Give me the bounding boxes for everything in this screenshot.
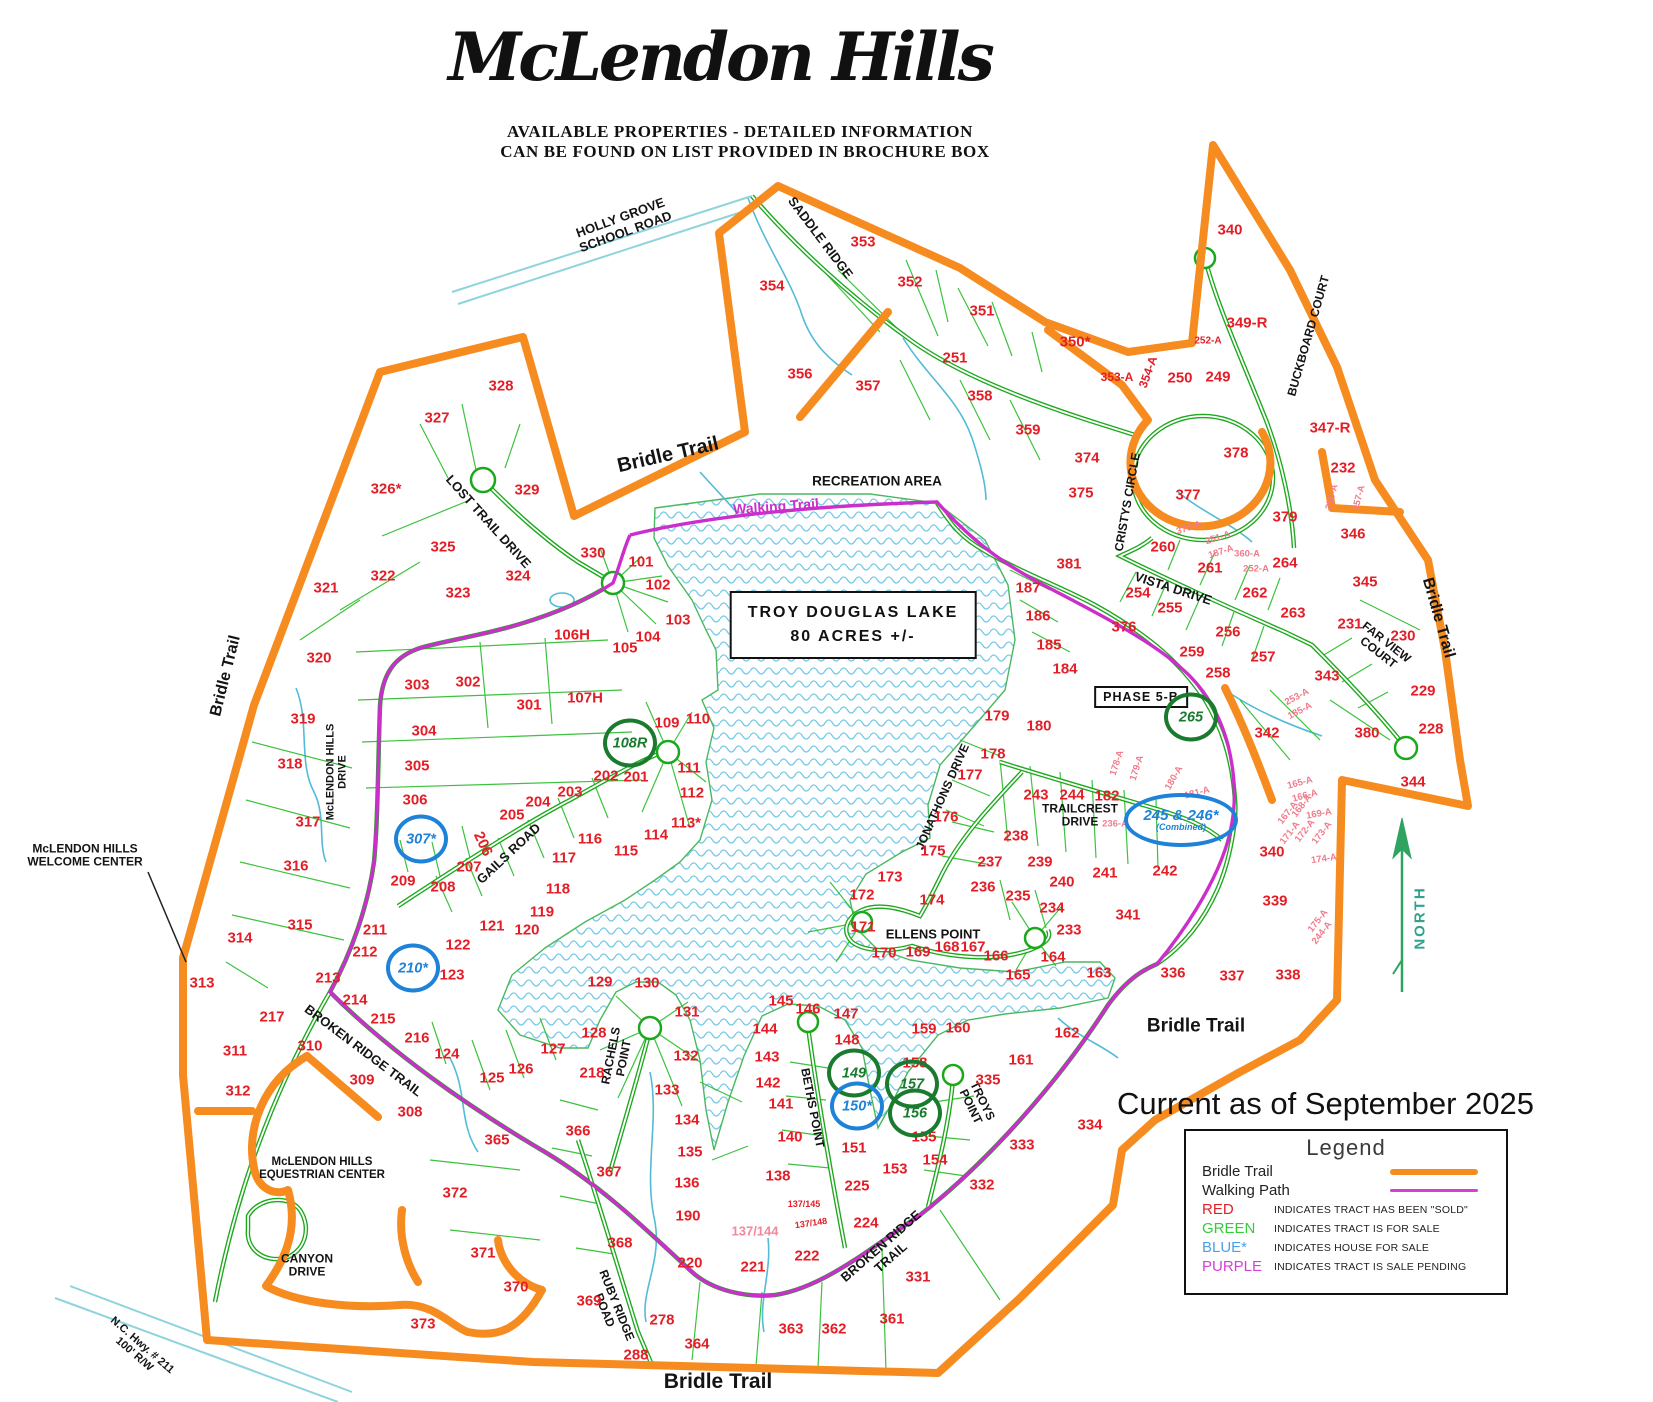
lot-358: 358 (967, 388, 992, 405)
lot-135: 135 (677, 1144, 702, 1161)
lot-217: 217 (259, 1009, 284, 1026)
lot-205: 205 (499, 807, 524, 824)
lot-368: 368 (607, 1235, 632, 1252)
subtitle-line1: AVAILABLE PROPERTIES - DETAILED INFORMAT… (507, 122, 973, 142)
lot-207: 207 (456, 859, 481, 876)
lot-123: 123 (439, 967, 464, 984)
lot-184: 184 (1052, 661, 1077, 678)
lot-177: 177 (957, 767, 982, 784)
lot-230: 230 (1390, 628, 1415, 645)
lot-137/145: 137/145 (788, 1199, 821, 1209)
lot-131: 131 (674, 1004, 699, 1021)
lot-151: 151 (841, 1140, 866, 1157)
lot-153: 153 (882, 1161, 907, 1178)
lot-373: 373 (410, 1316, 435, 1333)
lot-365: 365 (484, 1132, 509, 1149)
lot-326*: 326* (371, 481, 402, 498)
lot-179: 179 (984, 708, 1009, 725)
lot-379: 379 (1272, 509, 1297, 526)
bridle-trail-mid: Bridle Trail (1147, 1015, 1245, 1036)
lot-377: 377 (1175, 487, 1200, 504)
lot-213: 213 (315, 970, 340, 987)
lot-142: 142 (755, 1075, 780, 1092)
lot-105: 105 (612, 640, 637, 657)
lot-316: 316 (283, 858, 308, 875)
lot-331: 331 (905, 1269, 930, 1286)
lot-324: 324 (505, 568, 530, 585)
lot-103: 103 (665, 612, 690, 629)
lot-166: 166 (983, 948, 1008, 965)
lot-124: 124 (434, 1046, 459, 1063)
legend-entry-red: REDINDICATES TRACT HAS BEEN "SOLD" (1186, 1199, 1506, 1218)
lot-241: 241 (1092, 865, 1117, 882)
for-sale-lot-108R: 108R (603, 719, 657, 768)
lot-336: 336 (1160, 965, 1185, 982)
lot-261: 261 (1197, 560, 1222, 577)
lot-147: 147 (833, 1006, 858, 1023)
lot-350*: 350* (1060, 334, 1091, 351)
lot-337: 337 (1219, 968, 1244, 985)
lot-367: 367 (596, 1164, 621, 1181)
lot-242: 242 (1152, 863, 1177, 880)
lot-342: 342 (1254, 725, 1279, 742)
lot-338: 338 (1275, 967, 1300, 984)
lot-178: 178 (980, 746, 1005, 763)
lot-339: 339 (1262, 893, 1287, 910)
lot-240: 240 (1049, 874, 1074, 891)
lot-159: 159 (911, 1021, 936, 1038)
subtitle-line2: CAN BE FOUND ON LIST PROVIDED IN BROCHUR… (500, 142, 990, 162)
lot-104: 104 (635, 629, 660, 646)
lot-126: 126 (508, 1061, 533, 1078)
lot-340: 340 (1217, 222, 1242, 239)
lot-325: 325 (430, 539, 455, 556)
lot-313: 313 (189, 975, 214, 992)
lot-160: 160 (945, 1020, 970, 1037)
lot-141: 141 (768, 1096, 793, 1113)
lot-258: 258 (1205, 665, 1230, 682)
property-map: McLendon Hills AVAILABLE PROPERTIES - DE… (0, 0, 1653, 1402)
lot-321: 321 (313, 580, 338, 597)
mclendon-hills-drive: McLENDON HILLS DRIVE (325, 724, 350, 821)
lot-211: 211 (363, 922, 387, 939)
equestrian-center: McLENDON HILLS EQUESTRIAN CENTER (259, 1156, 385, 1182)
lot-128: 128 (581, 1025, 606, 1042)
lot-110: 110 (686, 711, 710, 728)
lot-311: 311 (223, 1043, 247, 1060)
lot-174: 174 (919, 892, 944, 909)
lot-167: 167 (960, 939, 985, 956)
lot-224: 224 (853, 1215, 878, 1232)
lot-176: 176 (933, 809, 958, 826)
lot-148: 148 (834, 1032, 859, 1049)
lot-228: 228 (1418, 721, 1443, 738)
bridle-trail-swatch (1390, 1169, 1478, 1175)
lot-359: 359 (1015, 422, 1040, 439)
lot-154: 154 (922, 1152, 947, 1169)
lot-362: 362 (821, 1321, 846, 1338)
lot-364: 364 (684, 1336, 709, 1353)
lot-129: 129 (587, 974, 612, 991)
lot-262: 262 (1242, 585, 1267, 602)
house-for-sale-lot-150: 150* (830, 1082, 884, 1131)
north-label: NORTH (1412, 886, 1429, 949)
lot-214: 214 (342, 992, 367, 1009)
lot-263: 263 (1280, 605, 1305, 622)
lot-236: 236 (970, 879, 995, 896)
lot-208: 208 (430, 879, 455, 896)
lot-209: 209 (390, 873, 415, 890)
lot-235: 235 (1005, 888, 1030, 905)
lot-238: 238 (1003, 828, 1028, 845)
lot-301: 301 (516, 697, 541, 714)
lot-345: 345 (1352, 574, 1377, 591)
lot-215: 215 (370, 1011, 395, 1028)
lot-372: 372 (442, 1185, 467, 1202)
lot-175: 175 (920, 843, 945, 860)
lot-332: 332 (969, 1177, 994, 1194)
recreation-area: RECREATION AREA (812, 473, 942, 488)
lot-130: 130 (634, 975, 659, 992)
lot-204: 204 (525, 794, 550, 811)
lot-162: 162 (1054, 1025, 1079, 1042)
lot-239: 239 (1027, 854, 1052, 871)
lot-260: 260 (1150, 539, 1175, 556)
legend-entry-blue: BLUE*INDICATES HOUSE FOR SALE (1186, 1237, 1506, 1256)
lot-122: 122 (445, 937, 470, 954)
lot-323: 323 (445, 585, 470, 602)
lot-221: 221 (740, 1259, 765, 1276)
lot-308: 308 (397, 1104, 422, 1121)
legend-row-walking: Walking Path (1186, 1180, 1506, 1199)
current-as-of: Current as of September 2025 (1117, 1086, 1534, 1122)
lot-288: 288 (623, 1347, 648, 1364)
sale-pending-lots-245-246: 245 & 246*(Combined) (1124, 793, 1238, 847)
lot-349-R: 349-R (1227, 315, 1268, 332)
lot-234: 234 (1039, 900, 1064, 917)
lot-254: 254 (1125, 585, 1150, 602)
lot-106H: 106H (554, 627, 590, 644)
lot-232: 232 (1330, 460, 1355, 477)
lot-378: 378 (1223, 445, 1248, 462)
lot-117: 117 (552, 850, 576, 867)
lot-116: 116 (578, 831, 602, 848)
lot-231: 231 (1337, 616, 1362, 633)
lot-165: 165 (1005, 967, 1030, 984)
lot-202: 202 (593, 768, 618, 785)
lot-143: 143 (754, 1049, 779, 1066)
lot-354: 354 (759, 278, 784, 295)
lot-169: 169 (905, 944, 930, 961)
lot-140: 140 (777, 1129, 802, 1146)
lot-133: 133 (654, 1082, 679, 1099)
lot-369: 369 (576, 1293, 601, 1310)
lot-102: 102 (645, 577, 670, 594)
lot-314: 314 (227, 930, 252, 947)
lot-381: 381 (1056, 556, 1081, 573)
lot-146: 146 (795, 1001, 820, 1018)
lot-185: 185 (1036, 637, 1061, 654)
house-for-sale-lot-307: 307* (394, 815, 448, 864)
lot-203: 203 (557, 784, 582, 801)
lot-243: 243 (1023, 787, 1048, 804)
lot-161: 161 (1008, 1052, 1033, 1069)
lot-335: 335 (975, 1072, 1000, 1089)
lot-252-A: 252-A (1194, 336, 1221, 347)
lake-label: TROY DOUGLAS LAKE 80 ACRES +/- (730, 591, 977, 659)
lot-310: 310 (297, 1038, 322, 1055)
welcome-center-label: McLENDON HILLS WELCOME CENTER (27, 843, 142, 870)
lot-115: 115 (614, 843, 638, 860)
lot-114: 114 (644, 827, 668, 844)
legend-entry-green: GREENINDICATES TRACT IS FOR SALE (1186, 1218, 1506, 1237)
for-sale-lot-156: 156 (888, 1089, 942, 1138)
lot-302: 302 (455, 674, 480, 691)
page-title: McLendon Hills (448, 18, 992, 96)
lot-134: 134 (674, 1112, 699, 1129)
lot-136: 136 (674, 1175, 699, 1192)
lot-101: 101 (628, 554, 653, 571)
lot-118: 118 (546, 881, 570, 898)
lot-127: 127 (540, 1041, 565, 1058)
lot-376: 376 (1111, 619, 1136, 636)
lot-320: 320 (306, 650, 331, 667)
lot-112: 112 (680, 785, 704, 802)
lot-327: 327 (424, 410, 449, 427)
lot-353: 353 (850, 234, 875, 251)
lot-145: 145 (768, 993, 793, 1010)
lot-244: 244 (1059, 787, 1084, 804)
bridle-trail-bottom: Bridle Trail (664, 1370, 773, 1394)
lot-250: 250 (1167, 370, 1192, 387)
lot-109: 109 (654, 715, 679, 732)
walking-path-swatch (1390, 1189, 1478, 1192)
lot-340: 340 (1259, 844, 1284, 861)
lot-319: 319 (290, 711, 315, 728)
lot-318: 318 (277, 756, 302, 773)
north-arrow-icon (1393, 818, 1411, 992)
lot-111: 111 (677, 760, 700, 777)
lot-251: 251 (942, 350, 967, 367)
lot-120: 120 (514, 922, 539, 939)
welcome-leader-line (148, 872, 186, 962)
lot-264: 264 (1272, 555, 1297, 572)
lot-171: 171 (850, 919, 875, 936)
lot-144: 144 (752, 1021, 777, 1038)
lot-257: 257 (1250, 649, 1275, 666)
lot-360-A: 360-A (1234, 549, 1260, 560)
lot-137/144: 137/144 (732, 1224, 779, 1239)
lot-164: 164 (1040, 949, 1065, 966)
lot-186: 186 (1025, 608, 1050, 625)
lot-252-A: 252-A (1243, 564, 1269, 575)
lot-312: 312 (225, 1083, 250, 1100)
lot-222: 222 (794, 1248, 819, 1265)
lot-229: 229 (1410, 683, 1435, 700)
lot-343: 343 (1314, 668, 1339, 685)
lot-341: 341 (1115, 907, 1140, 924)
lot-371: 371 (470, 1245, 495, 1262)
lot-180: 180 (1026, 718, 1051, 735)
lot-322: 322 (370, 568, 395, 585)
lot-305: 305 (404, 758, 429, 775)
lot-121: 121 (479, 918, 504, 935)
lot-333: 333 (1009, 1137, 1034, 1154)
lot-256: 256 (1215, 624, 1240, 641)
lot-306: 306 (402, 792, 427, 809)
lot-259: 259 (1179, 644, 1204, 661)
lot-163: 163 (1086, 965, 1111, 982)
lot-352: 352 (897, 274, 922, 291)
lot-278: 278 (649, 1312, 674, 1329)
lot-138: 138 (765, 1168, 790, 1185)
lot-315: 315 (287, 917, 312, 934)
lot-249: 249 (1205, 369, 1230, 386)
legend-title: Legend (1186, 1135, 1506, 1161)
for-sale-lot-265: 265 (1164, 693, 1218, 742)
lot-353-A: 353-A (1101, 370, 1134, 384)
lot-237: 237 (977, 854, 1002, 871)
lot-212: 212 (352, 944, 377, 961)
lot-173: 173 (877, 869, 902, 886)
lot-309: 309 (349, 1072, 374, 1089)
lot-304: 304 (411, 723, 436, 740)
lot-225: 225 (844, 1178, 869, 1195)
legend-row-bridle: Bridle Trail (1186, 1161, 1506, 1180)
lot-119: 119 (530, 904, 554, 921)
lot-330: 330 (580, 545, 605, 562)
lot-125: 125 (479, 1070, 504, 1087)
lot-351: 351 (969, 303, 994, 320)
lot-233: 233 (1056, 922, 1081, 939)
lot-329: 329 (514, 482, 539, 499)
lot-363: 363 (778, 1321, 803, 1338)
lot-380: 380 (1354, 725, 1379, 742)
lot-347-R: 347-R (1310, 420, 1351, 437)
lot-346: 346 (1340, 526, 1365, 543)
lot-201: 201 (623, 769, 648, 786)
lot-370: 370 (503, 1279, 528, 1296)
lot-190: 190 (675, 1208, 700, 1225)
lot-344: 344 (1400, 774, 1425, 791)
lot-218: 218 (579, 1065, 604, 1082)
lot-182: 182 (1094, 788, 1119, 805)
lot-168: 168 (934, 939, 959, 956)
lot-220: 220 (677, 1255, 702, 1272)
lot-216: 216 (404, 1030, 429, 1047)
lot-170: 170 (871, 945, 896, 962)
lot-317: 317 (295, 814, 320, 831)
canyon-drive: CANYON DRIVE (281, 1253, 333, 1280)
lot-328: 328 (488, 378, 513, 395)
lot-374: 374 (1074, 450, 1099, 467)
lot-132: 132 (673, 1048, 698, 1065)
lot-303: 303 (404, 677, 429, 694)
legend: Legend Bridle Trail Walking Path REDINDI… (1184, 1129, 1508, 1295)
lot-113*: 113* (671, 815, 701, 832)
house-for-sale-lot-210: 210* (386, 944, 440, 993)
lot-361: 361 (879, 1311, 904, 1328)
lot-255: 255 (1157, 600, 1182, 617)
lot-356: 356 (787, 366, 812, 383)
legend-entry-purple: PURPLEINDICATES TRACT IS SALE PENDING (1186, 1256, 1506, 1275)
lot-375: 375 (1068, 485, 1093, 502)
lot-172: 172 (849, 887, 874, 904)
lot-334: 334 (1077, 1117, 1102, 1134)
lot-357: 357 (855, 378, 880, 395)
lot-107H: 107H (567, 690, 603, 707)
lot-366: 366 (565, 1123, 590, 1140)
lot-187: 187 (1015, 580, 1040, 597)
